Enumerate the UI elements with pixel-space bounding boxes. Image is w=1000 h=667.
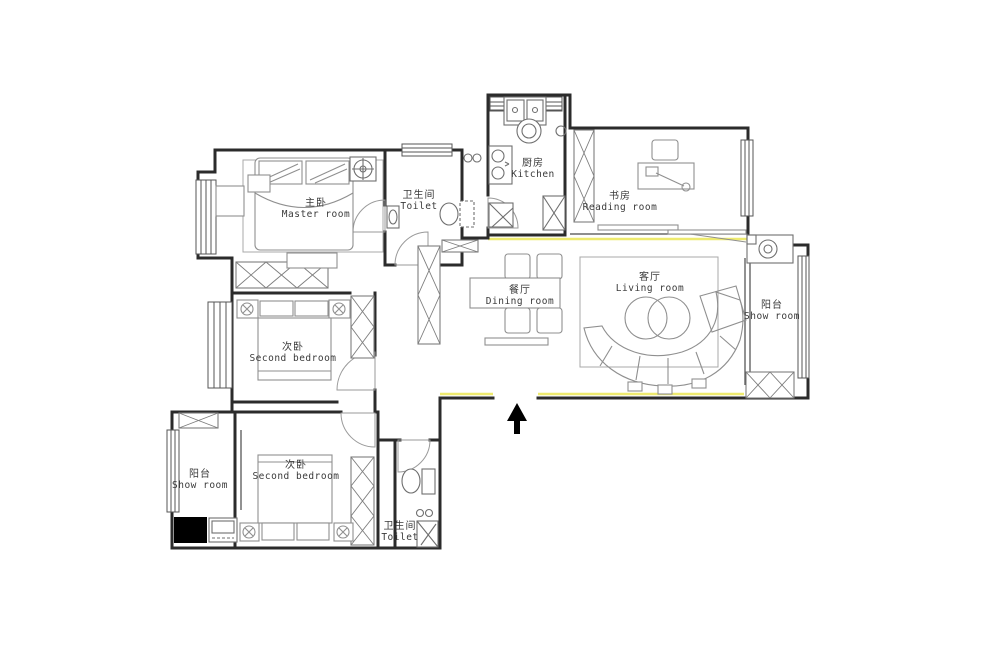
door-arc-bedroom2-bottom (341, 413, 375, 447)
room-label-zh: 餐厅 (509, 283, 531, 296)
room-label-en: Living room (616, 283, 684, 294)
shower-tray-icon (417, 521, 438, 547)
window-reading-right (741, 140, 753, 216)
room-label-balcony-left: 阳台 Show room (172, 467, 228, 491)
stool (248, 175, 270, 192)
nightstand-icon (329, 300, 350, 318)
dining-chair (505, 254, 530, 279)
slider-reading-living-2 (668, 230, 746, 234)
room-label-living: 客厅 Living room (616, 270, 684, 294)
dining-chair (537, 254, 562, 279)
room-label-en: Show room (172, 480, 228, 491)
shaft-black-square (174, 517, 207, 543)
room-label-en: Second bedroom (249, 353, 336, 364)
coffee-table-icon (648, 297, 690, 339)
vent-icon (473, 154, 481, 162)
balcony-right-ac-hatch (746, 372, 794, 398)
room-label-en: Show room (744, 311, 800, 322)
bedroom2-wardrobe-hatch (351, 296, 374, 358)
shoe-cabinet-hatch (442, 240, 478, 252)
headboard (295, 301, 328, 316)
stove-icon (489, 146, 512, 184)
ceiling-symbol-icon (350, 157, 376, 181)
room-label-en: Reading room (583, 202, 658, 213)
coffee-table-icon (625, 297, 667, 339)
room-label-toilet-bottom: 卫生间 Toilet (381, 519, 418, 543)
bedroom2-middle-furniture (237, 300, 350, 380)
water-heater-icon (517, 119, 541, 143)
appliance-icon (209, 518, 237, 542)
vent-icon (426, 510, 433, 517)
desk-icon (638, 163, 694, 191)
bed-bench (287, 253, 337, 268)
room-label-zh: 卫生间 (403, 188, 436, 201)
room-label-zh: 客厅 (639, 270, 661, 283)
dresser (216, 186, 244, 216)
room-label-balcony-right: 阳台 Show room (744, 298, 800, 322)
kitchen-corner-cabinet (489, 203, 513, 227)
window-balcony-left (167, 430, 179, 512)
washing-machine-icon (747, 235, 793, 263)
living-room-furniture (580, 257, 746, 394)
room-label-toilet-top: 卫生间 Toilet (400, 188, 437, 212)
reading-room-furniture (638, 140, 694, 191)
room-label-en: Dining room (486, 296, 554, 307)
room-label-zh: 阳台 (761, 298, 783, 311)
balcony-right-fixtures (747, 235, 793, 263)
room-label-en: Toilet (400, 201, 437, 212)
slider-reading-living (598, 225, 678, 230)
room-label-zh: 书房 (609, 189, 631, 202)
window-toilet-top (402, 144, 452, 156)
toilet-icon (440, 201, 474, 227)
vent-icon (464, 154, 472, 162)
hall-cabinet-hatch (418, 246, 440, 344)
nightstand-icon (240, 523, 259, 541)
bedroom2-bottom-wardrobe-hatch (351, 457, 374, 545)
nightstand-icon (334, 523, 353, 541)
window-bedroom2-left (208, 302, 232, 388)
sideboard (485, 338, 548, 345)
room-label-zh: 次卧 (282, 340, 304, 353)
pedestal-sink-icon (387, 206, 399, 228)
room-label-zh: 卫生间 (384, 519, 417, 532)
headboard (260, 301, 293, 316)
door-arc-toilet-bottom (398, 440, 430, 472)
door-arc-master (353, 200, 385, 232)
wall-highlight-lines (440, 239, 748, 394)
room-label-zh: 次卧 (285, 458, 307, 471)
curved-sofa-icon (584, 286, 746, 394)
dining-chair (505, 308, 530, 333)
footboard (262, 523, 294, 540)
vent-icon (417, 510, 424, 517)
dining-chair (537, 308, 562, 333)
room-label-zh: 阳台 (189, 467, 211, 480)
room-label-zh: 主卧 (305, 196, 327, 209)
room-label-zh: 厨房 (522, 156, 544, 169)
balcony-left-fixtures (174, 517, 237, 543)
room-label-en: Kitchen (511, 169, 555, 180)
toilet-icon (402, 469, 435, 494)
room-label-en: Second bedroom (252, 471, 339, 482)
nightstand-icon (237, 300, 258, 318)
desk-chair (652, 140, 678, 160)
floor-plan-canvas: 主卧 Master room 卫生间 Toilet 厨房 Kitchen 书房 … (0, 0, 1000, 667)
window-master-left (196, 180, 216, 254)
fridge-icon (543, 196, 565, 230)
room-label-en: Master room (282, 209, 350, 220)
room-label-kitchen: 厨房 Kitchen (511, 156, 555, 180)
floor-plan-drawing: 主卧 Master room 卫生间 Toilet 厨房 Kitchen 书房 … (0, 0, 1000, 667)
double-bed-icon (255, 158, 353, 250)
entry-arrow-icon (507, 403, 527, 434)
room-label-en: Toilet (381, 532, 418, 543)
footboard (297, 523, 329, 540)
balcony-left-cabinet-hatch (179, 413, 218, 428)
